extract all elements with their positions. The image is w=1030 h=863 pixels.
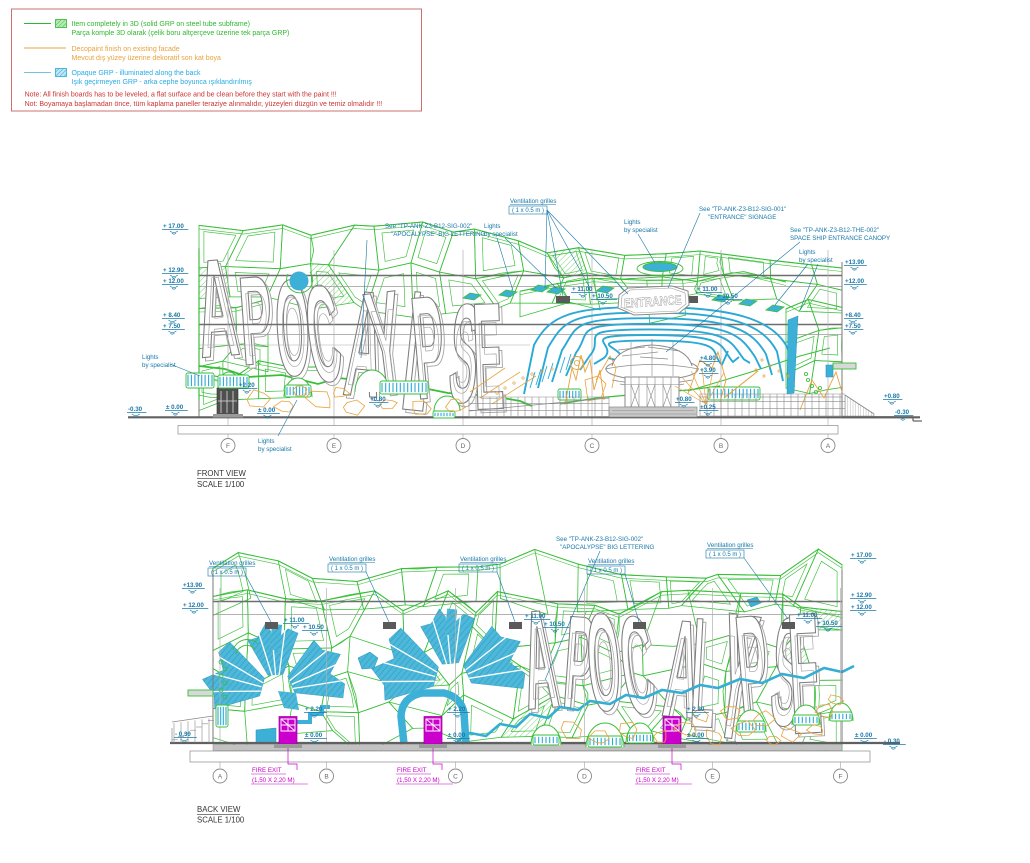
svg-text:+ 11.00: + 11.00 <box>697 286 718 293</box>
svg-text:B: B <box>324 773 328 780</box>
svg-text:Lights: Lights <box>142 354 159 361</box>
svg-text:Lights: Lights <box>258 438 275 445</box>
svg-text:+ 10.50: + 10.50 <box>544 621 565 628</box>
svg-text:+4.80: +4.80 <box>700 355 716 362</box>
svg-text:+ 2.20: + 2.20 <box>305 706 323 713</box>
svg-text:(1,50 X 2,20 M): (1,50 X 2,20 M) <box>252 777 295 784</box>
svg-text:SCALE 1/100: SCALE 1/100 <box>197 480 245 489</box>
svg-text:( 1 x 0.5 m ): ( 1 x 0.5 m ) <box>709 552 741 558</box>
svg-text:See "TP-ANK-Z3-B12-SIG-001": See "TP-ANK-Z3-B12-SIG-001" <box>699 206 786 213</box>
svg-text:Lights: Lights <box>799 249 816 256</box>
svg-text:( 1 x 0.5 m ): ( 1 x 0.5 m ) <box>211 570 243 576</box>
svg-text:Lights: Lights <box>484 223 501 230</box>
svg-text:by specialist: by specialist <box>484 231 518 238</box>
svg-text:+ 11.00: + 11.00 <box>572 286 593 293</box>
svg-text:+0.25: +0.25 <box>700 404 716 411</box>
svg-text:- 0.30: - 0.30 <box>884 738 900 745</box>
svg-text:( 1 x 0.5 m ): ( 1 x 0.5 m ) <box>512 208 544 214</box>
svg-text:Ventilation grilles: Ventilation grilles <box>588 558 634 565</box>
svg-text:+ 10.50: + 10.50 <box>717 293 738 300</box>
svg-text:See "TP-ANK-Z3-B12-THE-002": See "TP-ANK-Z3-B12-THE-002" <box>790 227 879 234</box>
svg-text:+ 17.00: + 17.00 <box>163 223 184 230</box>
svg-text:Item completely in 3D (solid: Item completely in 3D (solid GRP on stee… <box>72 21 250 28</box>
svg-text:by specialist: by specialist <box>624 227 658 234</box>
svg-text:FRONT VIEW: FRONT VIEW <box>197 469 246 478</box>
svg-text:by specialist: by specialist <box>142 362 176 369</box>
svg-text:SPACE SHIP ENTRANCE CANOPY: SPACE SHIP ENTRANCE CANOPY <box>790 235 890 242</box>
svg-text:+13.90: +13.90 <box>183 582 203 589</box>
svg-text:E: E <box>332 443 337 450</box>
svg-text:SCALE 1/100: SCALE 1/100 <box>197 816 245 825</box>
svg-text:+2.20: +2.20 <box>239 382 255 389</box>
svg-text:± 0.00: ± 0.00 <box>166 404 184 411</box>
svg-text:F: F <box>839 773 843 780</box>
svg-text:+ 7.50: + 7.50 <box>163 323 181 330</box>
svg-text:- 0.30: - 0.30 <box>175 731 191 738</box>
svg-text:+ 12.00: + 12.00 <box>851 604 872 611</box>
svg-text:± 0.00: ± 0.00 <box>687 732 705 739</box>
svg-text:+7.50: +7.50 <box>845 323 861 330</box>
svg-text:Lights: Lights <box>624 219 641 226</box>
svg-text:+0.80: +0.80 <box>884 393 900 400</box>
svg-text:D: D <box>461 443 466 450</box>
svg-text:+ 10.50: + 10.50 <box>303 624 324 631</box>
svg-text:+ 12.90: + 12.90 <box>163 267 184 274</box>
svg-text:+ 10.50: + 10.50 <box>592 293 613 300</box>
svg-text:Ventilation grilles: Ventilation grilles <box>209 560 255 567</box>
svg-text:Ventilation grilles: Ventilation grilles <box>510 198 556 205</box>
svg-text:± 0.00: ± 0.00 <box>855 732 873 739</box>
svg-text:+ 2.20: + 2.20 <box>687 706 705 713</box>
svg-text:FIRE EXIT: FIRE EXIT <box>397 767 427 774</box>
svg-text:Ventilation grilles: Ventilation grilles <box>707 542 753 549</box>
svg-text:+ 2.20: + 2.20 <box>448 706 466 713</box>
svg-text:+12.00: +12.00 <box>845 278 865 285</box>
svg-text:( 1 x 0.5 m ): ( 1 x 0.5 m ) <box>590 568 622 574</box>
svg-text:+ 12.90: + 12.90 <box>851 592 872 599</box>
svg-text:BACK VIEW: BACK VIEW <box>197 805 241 814</box>
svg-text:A: A <box>826 443 831 450</box>
svg-text:FIRE EXIT: FIRE EXIT <box>252 767 282 774</box>
svg-text:C: C <box>453 773 458 780</box>
svg-text:FIRE EXIT: FIRE EXIT <box>636 767 666 774</box>
svg-text:+ 11.00: + 11.00 <box>525 613 546 620</box>
svg-text:(1,50 X 2,20 M): (1,50 X 2,20 M) <box>636 777 679 784</box>
svg-text:(1,50 X 2,20 M): (1,50 X 2,20 M) <box>397 777 440 784</box>
svg-text:Işık geçirmeyen GRP - arka cep: Işık geçirmeyen GRP - arka cephe boyunca… <box>72 79 253 86</box>
svg-text:( 1 x 0.5 m ): ( 1 x 0.5 m ) <box>331 566 363 572</box>
svg-text:F: F <box>226 443 230 450</box>
svg-text:+ 12.00: + 12.00 <box>183 602 204 609</box>
svg-text:+3.90: +3.90 <box>700 367 716 374</box>
svg-text:Ventilation grilles: Ventilation grilles <box>329 556 375 563</box>
svg-text:+ 17.00: + 17.00 <box>851 552 872 559</box>
svg-text:Opaque GRP - illuminated along: Opaque GRP - illuminated along the back <box>72 70 202 77</box>
svg-text:Decopaint finish on existing f: Decopaint finish on existing facade <box>72 46 180 53</box>
svg-text:E: E <box>710 773 715 780</box>
svg-text:+ 10.50: + 10.50 <box>817 620 838 627</box>
svg-text:"APOCALYPSE" BIG LETTERING: "APOCALYPSE" BIG LETTERING <box>560 544 655 551</box>
svg-text:( 1 x 0.5 m ): ( 1 x 0.5 m ) <box>462 566 494 572</box>
svg-text:+ 8.40: + 8.40 <box>163 312 181 319</box>
svg-text:D: D <box>582 773 587 780</box>
svg-text:-0.30: -0.30 <box>128 406 143 413</box>
svg-text:Parça komple 3D olarak (çelik: Parça komple 3D olarak (çelik boru altçe… <box>72 30 290 37</box>
svg-text:+ 11.00: + 11.00 <box>284 617 305 624</box>
svg-text:See "TP-ANK-Z3-B12-SIG-002": See "TP-ANK-Z3-B12-SIG-002" <box>385 223 472 230</box>
svg-text:Mevcut dış yüzey üzerine dekor: Mevcut dış yüzey üzerine dekoratif son k… <box>72 55 222 62</box>
svg-text:± 0.00: ± 0.00 <box>448 732 466 739</box>
svg-text:+ 11.00: + 11.00 <box>797 612 818 619</box>
svg-text:+8.40: +8.40 <box>845 312 861 319</box>
svg-text:by specialist: by specialist <box>258 446 292 453</box>
svg-text:Ventilation grilles: Ventilation grilles <box>460 556 506 563</box>
svg-text:± 0.00: ± 0.00 <box>305 732 323 739</box>
svg-text:-0.30: -0.30 <box>895 409 910 416</box>
svg-text:B: B <box>719 443 723 450</box>
svg-text:See "TP-ANK-Z3-B12-SIG-002": See "TP-ANK-Z3-B12-SIG-002" <box>556 536 643 543</box>
svg-text:Not: Boyamaya başlamadan önce,: Not: Boyamaya başlamadan önce, tüm kapla… <box>25 101 383 108</box>
svg-text:Note: All finish boards has to: Note: All finish boards has to be levele… <box>25 92 337 99</box>
svg-text:C: C <box>590 443 595 450</box>
svg-text:"ENTRANCE" SIGNAGE: "ENTRANCE" SIGNAGE <box>708 214 776 221</box>
svg-text:+0.80: +0.80 <box>676 396 692 403</box>
svg-text:+0.80: +0.80 <box>370 396 386 403</box>
svg-text:"APOCALYPSE" BIG LETTERING: "APOCALYPSE" BIG LETTERING <box>391 231 486 238</box>
svg-text:+13.90: +13.90 <box>845 259 865 266</box>
svg-text:A: A <box>218 773 223 780</box>
svg-text:+ 12.00: + 12.00 <box>163 278 184 285</box>
svg-text:± 0.00: ± 0.00 <box>258 407 276 414</box>
svg-text:by specialist: by specialist <box>799 257 833 264</box>
